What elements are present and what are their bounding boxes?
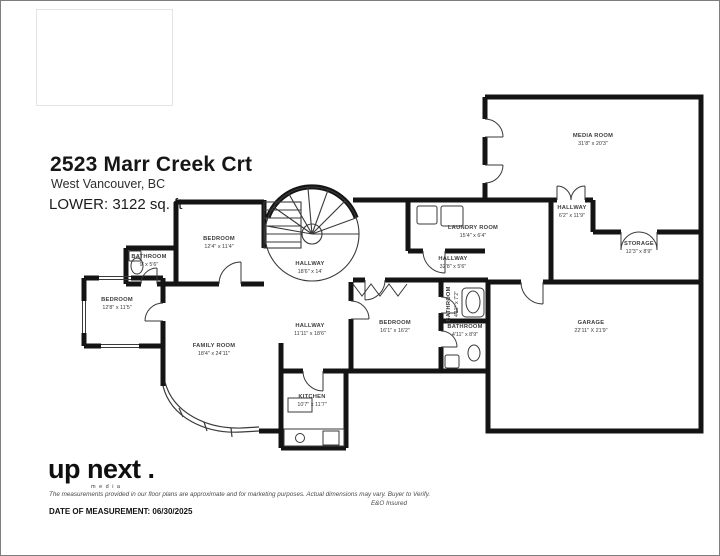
room-label-media-room: MEDIA ROOM 31'8" x 20'3"	[573, 132, 613, 148]
room-name: KITCHEN	[297, 393, 326, 401]
room-name: BATHROOM	[131, 253, 166, 261]
upnext-logo-media-text: media	[91, 484, 123, 490]
room-name: BATHROOM	[445, 286, 453, 321]
room-label-hallway-center: HALLWAY 11'11" x 18'6"	[294, 322, 326, 338]
room-dims: 10'7" x 11'7"	[297, 401, 326, 409]
room-name: BATHROOM	[447, 323, 482, 331]
room-label-bathroom-lower: BATHROOM 4'11" x 8'9"	[447, 323, 482, 339]
room-name: FAMILY ROOM	[193, 342, 236, 350]
room-name: GARAGE	[574, 319, 607, 327]
room-dims: 4'11" x 8'9"	[447, 331, 482, 339]
room-dims: 11'11" x 18'6"	[294, 330, 326, 338]
room-name: BEDROOM	[379, 319, 411, 327]
room-name: HALLWAY	[295, 260, 324, 268]
room-dims: 12'4" x 11'4"	[203, 243, 235, 251]
upnext-logo: up next .	[48, 454, 155, 485]
room-label-bedroom-left: BEDROOM 12'8" x 11'5"	[101, 296, 133, 312]
room-name: STORAGE	[624, 240, 654, 248]
room-dims: 9' x 5'6"	[131, 261, 166, 269]
room-label-hallway-corridor: HALLWAY 32'8" x 5'6"	[438, 255, 467, 271]
room-name: MEDIA ROOM	[573, 132, 613, 140]
room-label-storage: STORAGE 12'3" x 8'9"	[624, 240, 654, 256]
insured-text: E&O Insured	[49, 500, 407, 507]
room-label-hallway-stairs: HALLWAY 18'6" x 14'	[295, 260, 324, 276]
room-label-laundry-room: LAUNDRY ROOM 15'4" x 6'4"	[448, 224, 498, 240]
closet-doors	[353, 284, 407, 296]
room-label-garage: GARAGE 22'11" X 21'9"	[574, 319, 607, 335]
room-label-bathroom-left: BATHROOM 9' x 5'6"	[131, 253, 166, 269]
room-dims: 18'6" x 14'	[295, 268, 324, 276]
room-name: LAUNDRY ROOM	[448, 224, 498, 232]
room-label-hallway-right: HALLWAY 6'2" x 11'9"	[557, 204, 586, 220]
room-dims: 22'11" X 21'9"	[574, 327, 607, 335]
room-dims: 18'4" x 24'11"	[193, 350, 236, 358]
room-label-bathroom-upper: BATHROOM 4'11" x 7'2"	[445, 286, 461, 321]
room-dims: 12'3" x 8'9"	[624, 248, 654, 256]
room-dims: 4'11" x 7'2"	[453, 286, 461, 321]
room-name: BEDROOM	[203, 235, 235, 243]
room-name: HALLWAY	[294, 322, 326, 330]
room-dims: 16'1" x 16'2"	[379, 327, 411, 335]
room-label-family-room: FAMILY ROOM 18'4" x 24'11"	[193, 342, 236, 358]
room-dims: 31'8" x 20'3"	[573, 140, 613, 148]
disclaimer-text: The measurements provided in our floor p…	[49, 491, 430, 498]
room-label-bedroom-upper: BEDROOM 12'4" x 11'4"	[203, 235, 235, 251]
room-dims: 6'2" x 11'9"	[557, 212, 586, 220]
room-name: BEDROOM	[101, 296, 133, 304]
room-label-bedroom-center: BEDROOM 16'1" x 16'2"	[379, 319, 411, 335]
walls	[84, 97, 701, 448]
room-dims: 12'8" x 11'5"	[101, 304, 133, 312]
room-label-kitchen: KITCHEN 10'7" x 11'7"	[297, 393, 326, 409]
floorplan-page: 2523 Marr Creek Crt West Vancouver, BC L…	[0, 0, 720, 556]
room-dims: 15'4" x 6'4"	[448, 232, 498, 240]
measurement-date: DATE OF MEASUREMENT: 06/30/2025	[49, 507, 192, 516]
bay-window	[163, 382, 259, 437]
room-name: HALLWAY	[438, 255, 467, 263]
room-name: HALLWAY	[557, 204, 586, 212]
room-dims: 32'8" x 5'6"	[438, 263, 467, 271]
